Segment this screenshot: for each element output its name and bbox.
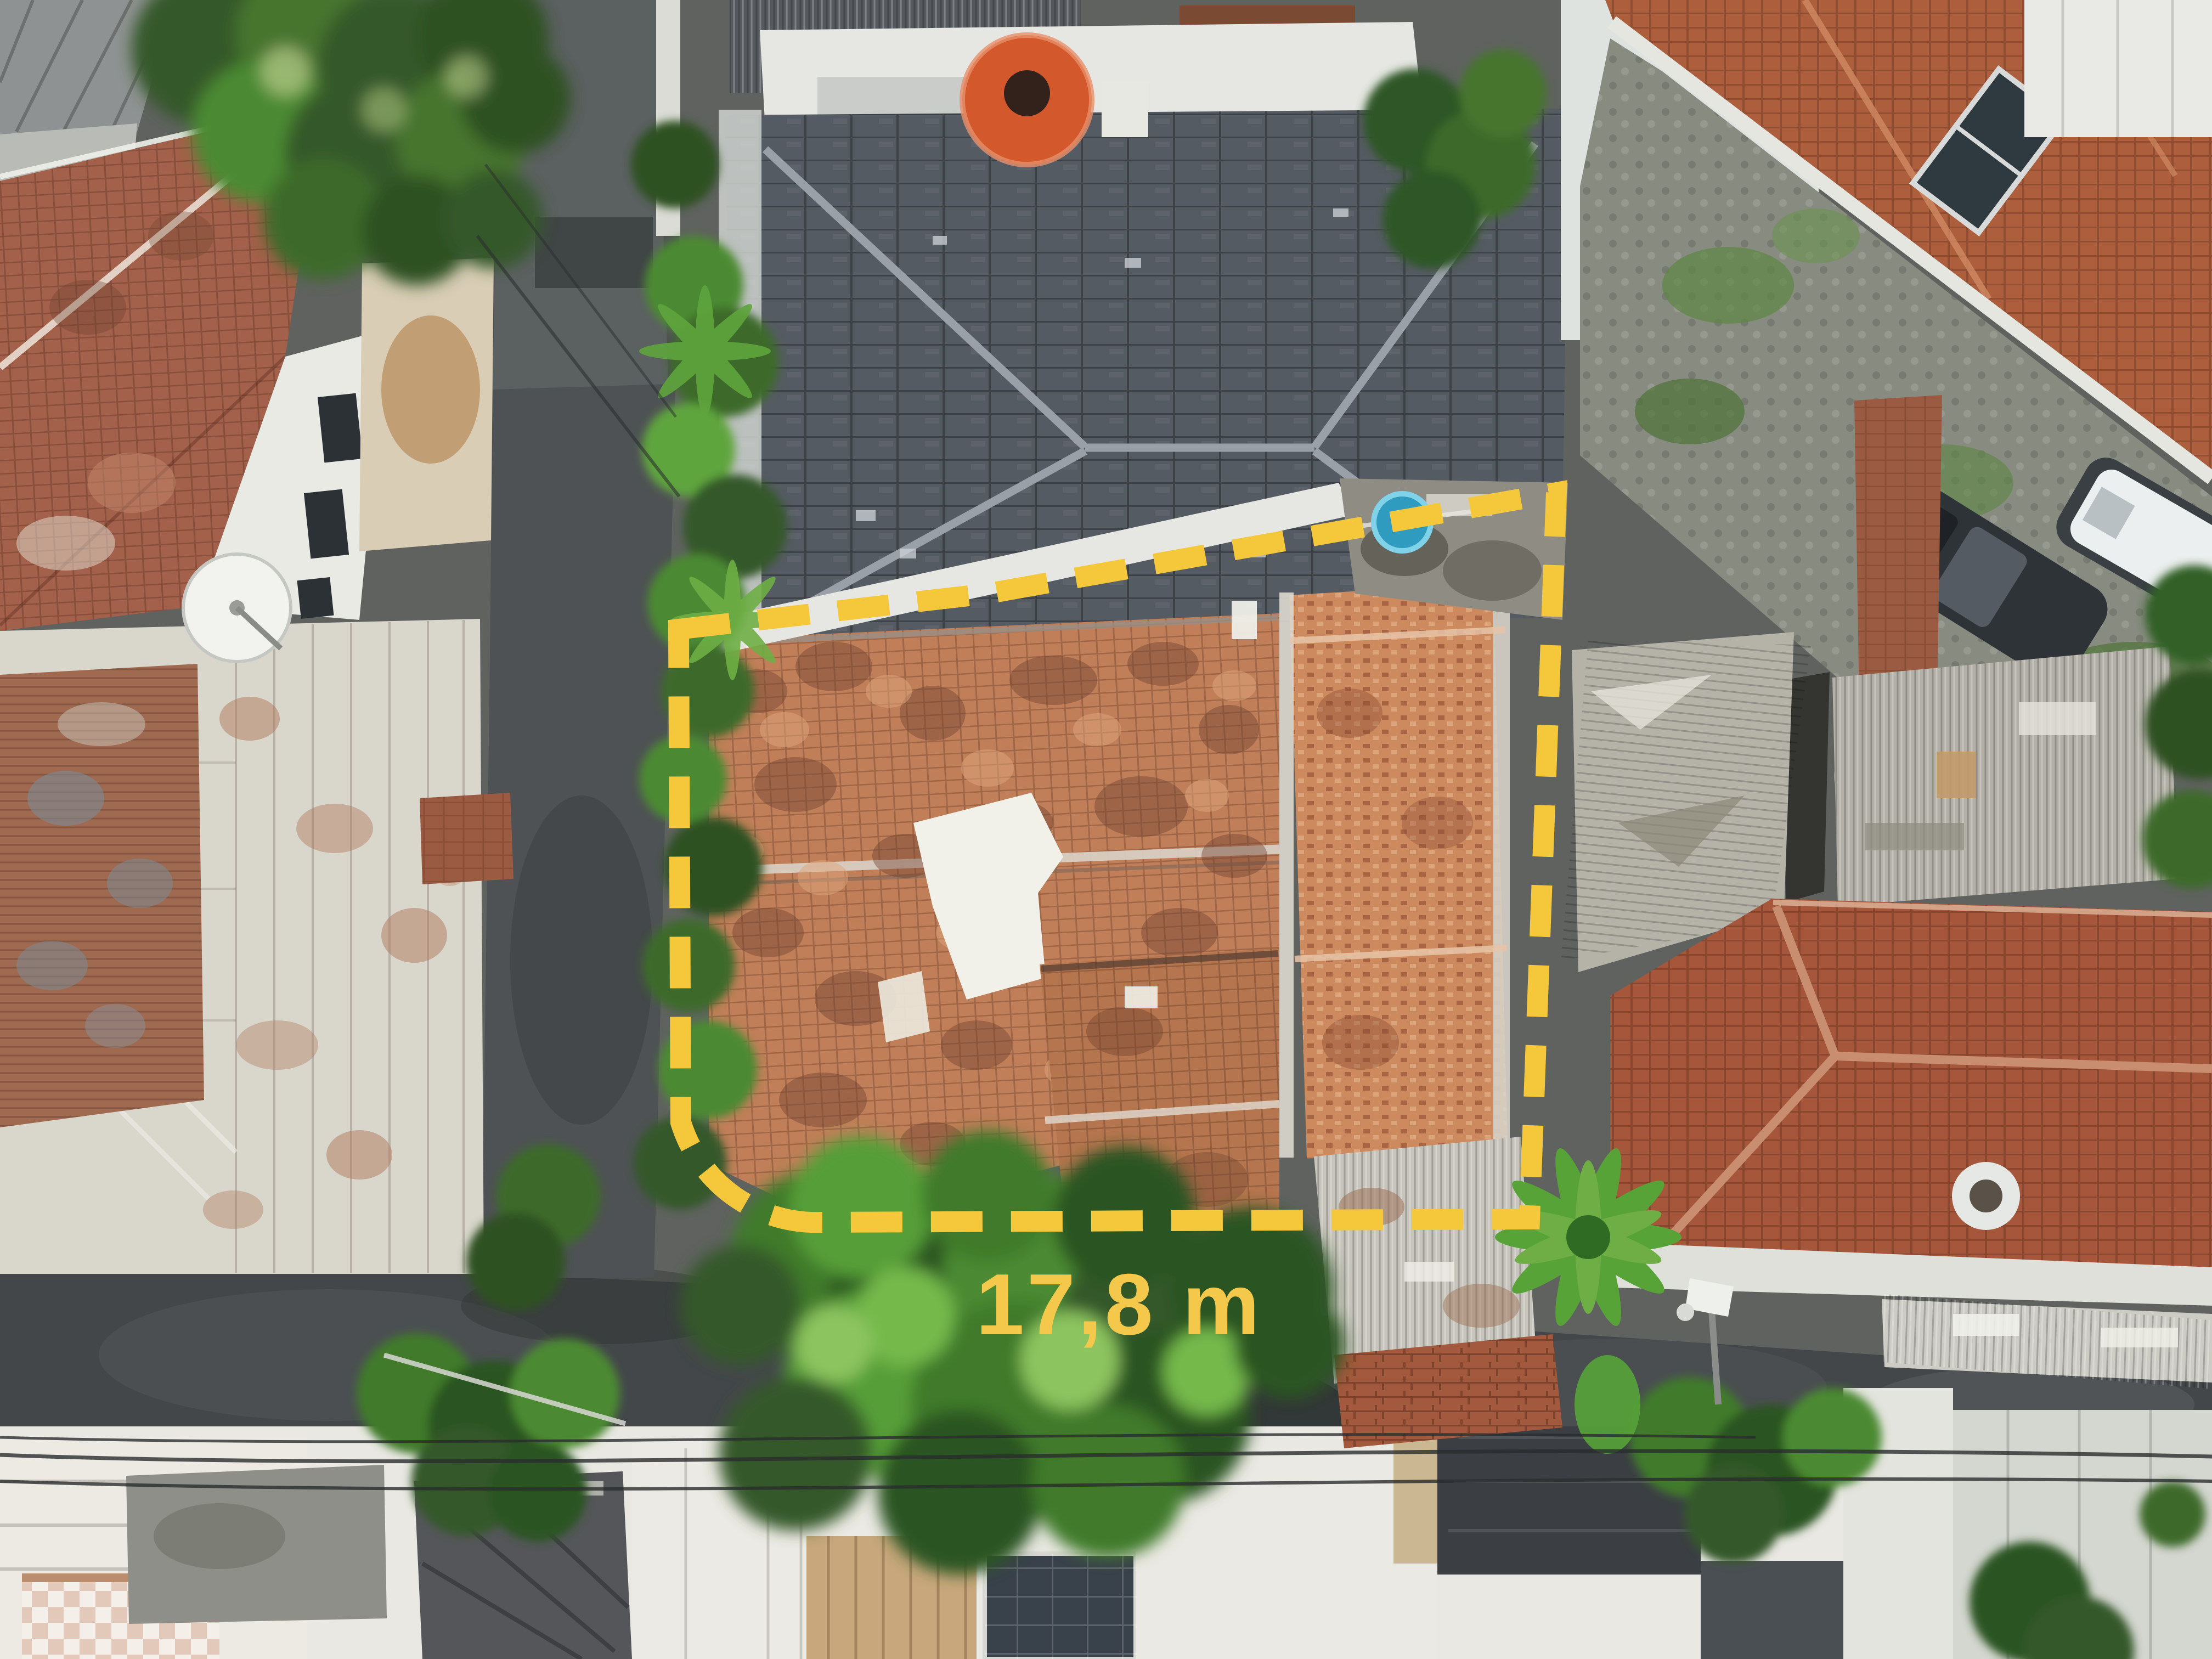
old-metal-roof-building [0, 554, 513, 1274]
aerial-photo-canvas: 17,8 m [0, 0, 2212, 1659]
right-edge-foliage [2142, 565, 2212, 889]
aerial-photo: 17,8 m [0, 0, 2212, 1659]
roof-vent [1952, 1162, 2020, 1230]
white-figure [1232, 601, 1257, 639]
property-right-roof [1279, 582, 1510, 1159]
measurement-label: 17,8 m [976, 1256, 1262, 1353]
rust-corrugated-roof [0, 664, 204, 1127]
satellite-dish [183, 554, 291, 662]
